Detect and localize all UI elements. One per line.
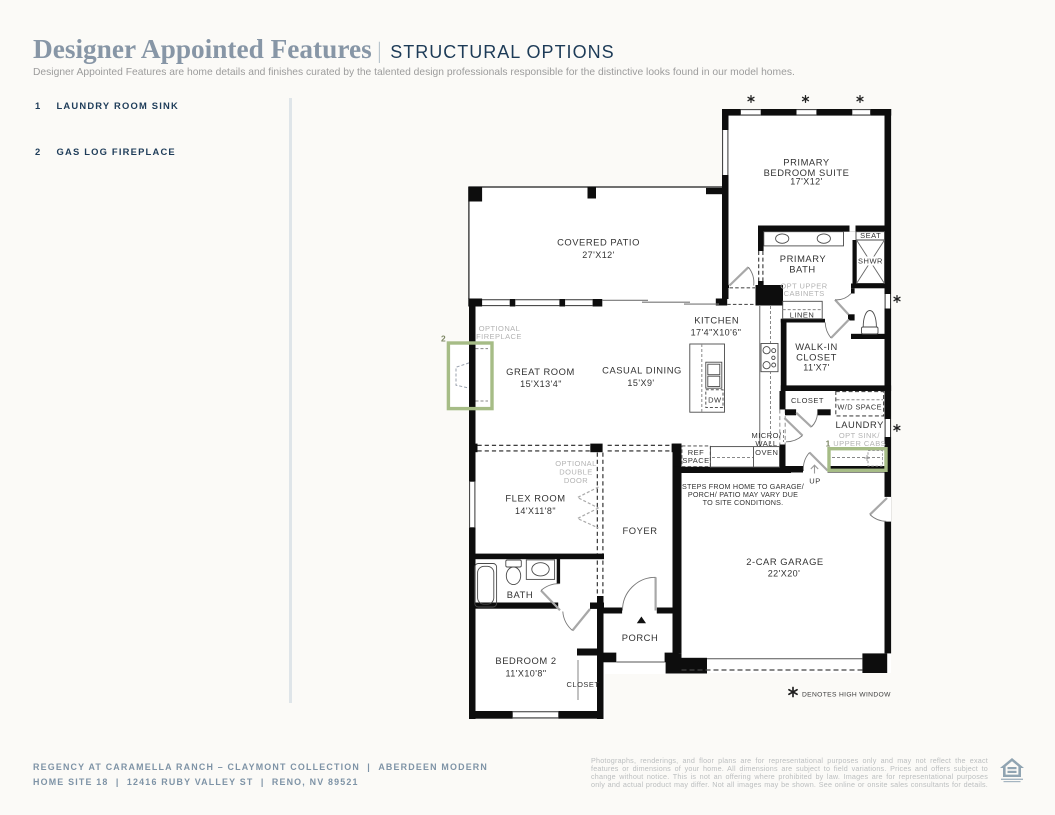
svg-text:DENOTES HIGH WINDOW: DENOTES HIGH WINDOW	[802, 692, 891, 699]
svg-text:WALL: WALL	[755, 439, 777, 448]
svg-text:FLEX ROOM: FLEX ROOM	[505, 493, 565, 504]
svg-text:TO SITE CONDITIONS.: TO SITE CONDITIONS.	[703, 498, 784, 507]
svg-text:UP: UP	[809, 477, 820, 486]
svg-text:CLOSET: CLOSET	[796, 352, 837, 363]
svg-text:LINEN: LINEN	[790, 311, 815, 320]
svg-text:DW: DW	[708, 396, 722, 405]
svg-text:CLOSET: CLOSET	[566, 680, 599, 689]
svg-text:W/D SPACE: W/D SPACE	[837, 403, 882, 412]
svg-text:FOYER: FOYER	[622, 525, 657, 536]
svg-text:15'X9': 15'X9'	[627, 378, 654, 388]
svg-text:PORCH: PORCH	[622, 632, 659, 643]
svg-text:BATH: BATH	[507, 589, 534, 600]
svg-text:27'X12': 27'X12'	[582, 250, 615, 260]
svg-text:11'X10'8": 11'X10'8"	[505, 669, 546, 679]
svg-text:17'4"X10'6": 17'4"X10'6"	[691, 328, 742, 338]
svg-text:PRIMARY: PRIMARY	[783, 156, 830, 167]
svg-text:WALK-IN: WALK-IN	[795, 341, 838, 352]
svg-text:BATH: BATH	[789, 264, 816, 275]
svg-text:BEDROOM 2: BEDROOM 2	[495, 655, 556, 666]
svg-text:1: 1	[826, 439, 831, 449]
svg-text:15'X13'4": 15'X13'4"	[520, 379, 562, 389]
svg-text:SEAT: SEAT	[860, 231, 881, 240]
svg-text:COVERED PATIO: COVERED PATIO	[557, 237, 640, 248]
svg-text:CASUAL DINING: CASUAL DINING	[602, 365, 682, 376]
svg-text:22'X20': 22'X20'	[768, 569, 801, 579]
svg-text:SHWR: SHWR	[858, 257, 883, 266]
svg-text:LAUNDRY: LAUNDRY	[835, 419, 884, 430]
svg-text:CABINETS: CABINETS	[784, 289, 825, 298]
svg-text:OVEN: OVEN	[755, 448, 778, 457]
svg-text:11'X7': 11'X7'	[803, 363, 830, 373]
svg-text:DOOR: DOOR	[564, 476, 588, 485]
svg-text:2: 2	[441, 334, 446, 344]
svg-text:FIREPLACE: FIREPLACE	[476, 332, 522, 341]
svg-text:2-CAR GARAGE: 2-CAR GARAGE	[746, 556, 823, 567]
svg-text:14'X11'8": 14'X11'8"	[515, 506, 556, 516]
svg-text:PRIMARY: PRIMARY	[780, 253, 827, 264]
svg-text:CLOSET: CLOSET	[791, 396, 824, 405]
svg-text:KITCHEN: KITCHEN	[694, 315, 739, 326]
svg-text:17'X12': 17'X12'	[790, 177, 823, 187]
svg-text:GREAT ROOM: GREAT ROOM	[506, 366, 575, 377]
svg-text:UPPER CABS: UPPER CABS	[833, 439, 886, 448]
svg-text:SPACE: SPACE	[682, 456, 709, 465]
